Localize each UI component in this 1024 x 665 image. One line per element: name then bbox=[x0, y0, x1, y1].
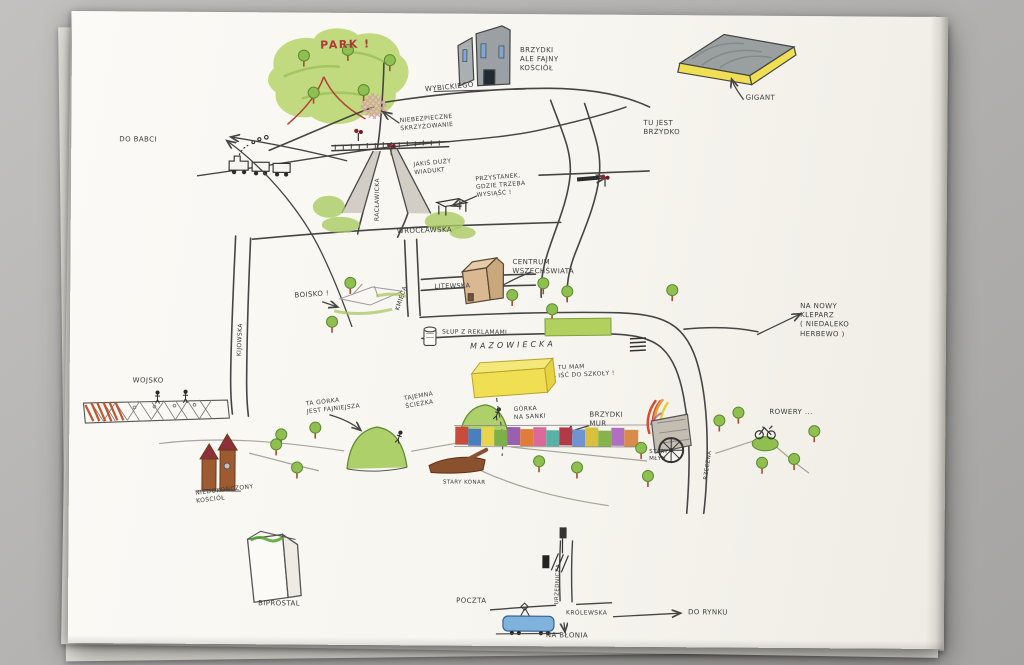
label-street-raclawicka: RACŁAWICKA bbox=[374, 178, 382, 221]
label-stary-konar: STARY KONAR bbox=[443, 480, 486, 488]
label-do-babci: DO BABCI bbox=[119, 135, 157, 144]
label-dangerous-crossing: NIEBEZPIECZNE SKRZYŻOWANIE bbox=[399, 113, 453, 133]
label-poczta: POCZTA bbox=[456, 597, 486, 606]
label-street-kijowska: KIJOWSKA bbox=[236, 323, 245, 356]
label-slup-z-reklamami: SŁUP Z REKLAMAMI bbox=[442, 329, 507, 337]
label-gigant: GIGANT bbox=[746, 94, 776, 103]
label-szkola: TU MAM IŚĆ DO SZKOŁY ! bbox=[558, 362, 615, 380]
label-street-urzednicza: URZĘDNICZA bbox=[554, 564, 563, 605]
label-boisko: BOISKO ! bbox=[294, 289, 329, 300]
label-street-kmieca: KMIECA bbox=[394, 285, 410, 312]
label-street-litewska: LITEWSKA bbox=[434, 281, 470, 291]
label-centrum-wszechswiata: CENTRUM WSZECHŚWIATA bbox=[512, 258, 574, 277]
label-street-wroclawska: WROCŁAWSKA bbox=[397, 226, 452, 237]
label-street-mazowiecka: MAZOWIECKA bbox=[470, 339, 556, 352]
paper-sheet: PARK ! WYBICKIEGO NIEBEZPIECZNE SKRZYŻOW… bbox=[68, 11, 948, 649]
label-ugly-church: BRZYDKI ALE FAJNY KOŚCIÓŁ bbox=[520, 46, 559, 74]
label-gorka-na-sanki: GÓRKA NA SANKI bbox=[513, 405, 546, 422]
label-street-wybickiego: WYBICKIEGO bbox=[425, 81, 475, 95]
label-biprostal: BIPROSTAL bbox=[258, 599, 300, 609]
label-stary-mlyn: STARY MŁYN bbox=[649, 449, 668, 464]
label-na-nowy-kleparz: NA NOWY KLEPARZ ( NIEDALEKO HERBEWO ) bbox=[800, 302, 849, 339]
label-niedokonczony-kosciol: NIEDOKOŃCZONY KOŚCIÓŁ bbox=[195, 483, 255, 505]
label-rowery: ROWERY ... bbox=[769, 408, 812, 418]
label-tu-jest-brzydko: TU JEST BRZYDKO bbox=[643, 119, 680, 138]
photo-scene: PARK ! WYBICKIEGO NIEBEZPIECZNE SKRZYŻOW… bbox=[0, 0, 1024, 665]
label-park: PARK ! bbox=[320, 37, 371, 53]
label-ta-gorka: TA GÓRKA JEST FAJNIEJSZA bbox=[306, 394, 361, 416]
map-labels: PARK ! WYBICKIEGO NIEBEZPIECZNE SKRZYŻOW… bbox=[68, 11, 948, 649]
label-do-rynku: DO RYNKU bbox=[688, 608, 728, 618]
label-street-krolewska: KRÓLEWSKA bbox=[566, 609, 607, 617]
label-przystanek: PRZYSTANEK, GDZIE TRZEBA WYSIĄŚĆ ! bbox=[475, 172, 526, 200]
label-wiadukt: JAKIŚ DUŻY WIADUKT bbox=[413, 158, 452, 177]
paper-curl-edge bbox=[926, 17, 948, 649]
label-tajemna-sciezka: TAJEMNA ŚCIEŻKA bbox=[404, 390, 436, 411]
label-street-rzeczna: RZECZNA bbox=[703, 450, 714, 480]
label-brzydki-mur: BRZYDKI MUR bbox=[589, 411, 623, 430]
label-wojsko: WOJSKO bbox=[133, 376, 164, 385]
